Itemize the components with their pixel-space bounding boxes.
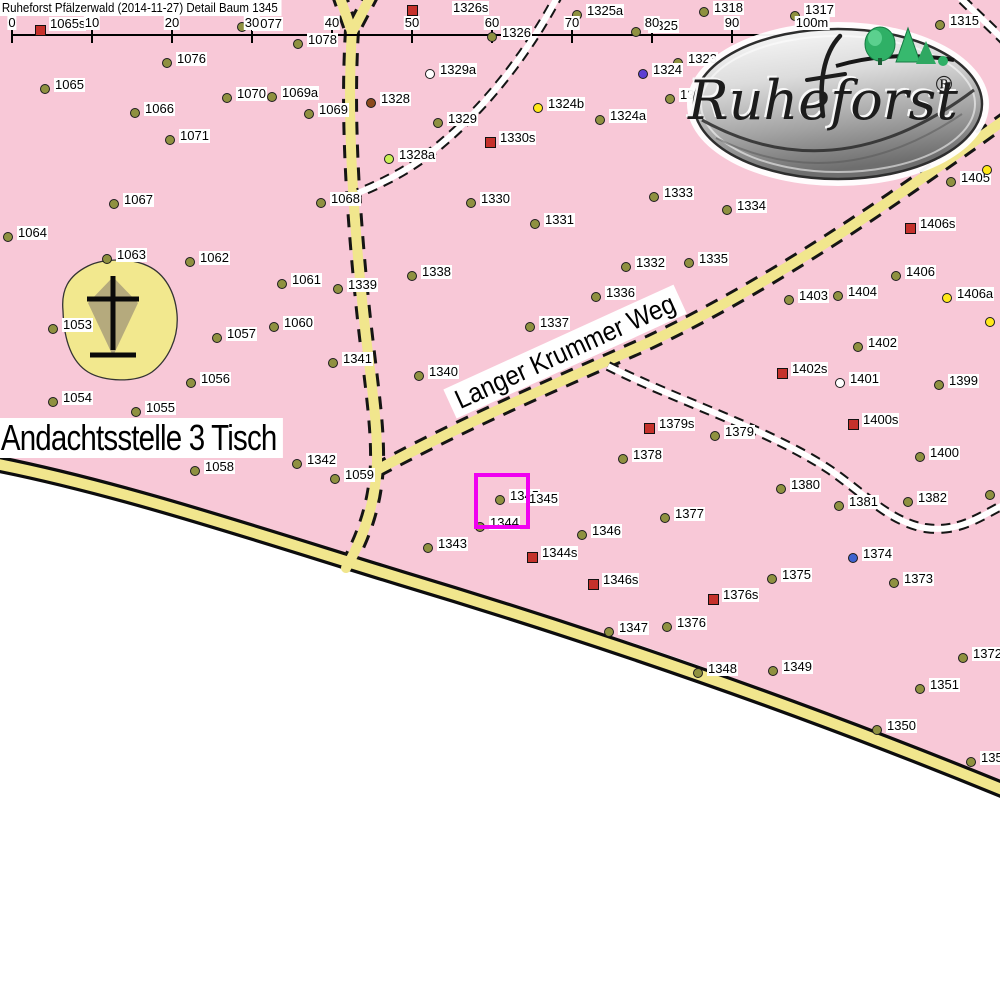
- tree-marker-1404: [833, 291, 843, 301]
- tree-label-1060: 1060: [283, 316, 314, 330]
- tree-marker-1066: [130, 108, 140, 118]
- tree-label-1324a: 1324a: [609, 109, 647, 123]
- tree-marker-1373: [889, 578, 899, 588]
- tree-label-1335: 1335: [698, 252, 729, 266]
- tree-marker-1336: [591, 292, 601, 302]
- tree-marker-1055: [131, 407, 141, 417]
- scalebar-label-100m: 100m: [795, 16, 830, 30]
- tree-label-1337: 1337: [539, 316, 570, 330]
- tree-marker-1331: [530, 219, 540, 229]
- tree-marker-1341: [328, 358, 338, 368]
- tree-marker-1402s: [777, 368, 788, 379]
- tree-label-1375: 1375: [781, 568, 812, 582]
- tree-label-1342: 1342: [306, 453, 337, 467]
- tree-marker-1340: [414, 371, 424, 381]
- tree-marker-1348: [693, 668, 703, 678]
- tree-marker-1054: [48, 397, 58, 407]
- tree-label-1380: 1380: [790, 478, 821, 492]
- tree-label-1059: 1059: [344, 468, 375, 482]
- tree-marker-1078: [293, 39, 303, 49]
- scalebar-label-60: 60: [484, 16, 500, 30]
- tree-marker-1339: [333, 284, 343, 294]
- tree-marker-1058: [190, 466, 200, 476]
- tree-marker-1377: [660, 513, 670, 523]
- tree-label-1328a: 1328a: [398, 148, 436, 162]
- tree-label-1332: 1332: [635, 256, 666, 270]
- tree-label-1399: 1399: [948, 374, 979, 388]
- scalebar-label-20: 20: [164, 16, 180, 30]
- tree-marker-1350: [872, 725, 882, 735]
- tree-label-1065: 1065: [54, 78, 85, 92]
- scalebar-label-0: 0: [7, 16, 16, 30]
- tree-marker-1346: [577, 530, 587, 540]
- tree-marker-1374: [848, 553, 858, 563]
- tree-label-1326s: 1326s: [452, 1, 489, 15]
- tree-label-1374: 1374: [862, 547, 893, 561]
- tree-label-1324b: 1324b: [547, 97, 585, 111]
- tree-marker-1067: [109, 199, 119, 209]
- tree-marker-1344s: [527, 552, 538, 563]
- tree-marker-1351: [915, 684, 925, 694]
- tree-label-1378: 1378: [632, 448, 663, 462]
- tree-marker-1064: [3, 232, 13, 242]
- selected-tree-highlight: [474, 473, 530, 529]
- tree-marker-1069: [304, 109, 314, 119]
- tree-label-1348: 1348: [707, 662, 738, 676]
- tree-label-1076: 1076: [176, 52, 207, 66]
- tree-marker-1334: [722, 205, 732, 215]
- tree-marker-1376s: [708, 594, 719, 605]
- tree-label-1330s: 1330s: [499, 131, 536, 145]
- tree-marker-1069a: [267, 92, 277, 102]
- tree-marker-1406s: [905, 223, 916, 234]
- tree-label-1349: 1349: [782, 660, 813, 674]
- tree-label-1064: 1064: [17, 226, 48, 240]
- tree-marker-1380: [776, 484, 786, 494]
- tree-label-1324: 1324: [652, 63, 683, 77]
- tree-label-1058: 1058: [204, 460, 235, 474]
- tree-label-1057: 1057: [226, 327, 257, 341]
- tree-label-1069a: 1069a: [281, 86, 319, 100]
- tree-label-1382: 1382: [917, 491, 948, 505]
- tree-marker-1375: [767, 574, 777, 584]
- tree-marker-1403: [784, 295, 794, 305]
- tree-marker-1329: [433, 118, 443, 128]
- tree-marker-1343: [423, 543, 433, 553]
- tree-label-1351: 1351: [929, 678, 960, 692]
- tree-marker-1372: [958, 653, 968, 663]
- tree-marker-1328: [366, 98, 376, 108]
- scalebar-label-10: 10: [84, 16, 100, 30]
- tree-label-1061: 1061: [291, 273, 322, 287]
- tree-marker-1065: [40, 84, 50, 94]
- tree-marker-1352: [966, 757, 976, 767]
- tree-marker-1332: [621, 262, 631, 272]
- tree-label-1325a: 1325a: [586, 4, 624, 18]
- tree-label-1346s: 1346s: [602, 573, 639, 587]
- tree-marker-1335: [684, 258, 694, 268]
- tree-label-1372: 1372: [972, 647, 1000, 661]
- tree-label-1402s: 1402s: [791, 362, 828, 376]
- tree-marker-1406: [891, 271, 901, 281]
- tree-marker-1402: [853, 342, 863, 352]
- tree-label-1328: 1328: [380, 92, 411, 106]
- tree-marker-1382: [903, 497, 913, 507]
- tree-label-1331: 1331: [544, 213, 575, 227]
- ruheforst-logo: Ruheforst Ruheforst ®: [686, 14, 990, 190]
- tree-marker-1347: [604, 627, 614, 637]
- tree-marker-1401: [835, 378, 845, 388]
- tree-label-1068: 1068: [330, 192, 361, 206]
- tree-label-1406: 1406: [905, 265, 936, 279]
- logo-registered-mark: ®: [933, 73, 955, 98]
- tree-marker-1062: [185, 257, 195, 267]
- tree-label-1053: 1053: [62, 318, 93, 332]
- tree-label-1381: 1381: [848, 495, 879, 509]
- tree-label-1329a: 1329a: [439, 63, 477, 77]
- tree-label-1067: 1067: [123, 193, 154, 207]
- tree-label-1070: 1070: [236, 87, 267, 101]
- tree-marker-1071: [165, 135, 175, 145]
- tree-marker-1376: [662, 622, 672, 632]
- tree-marker-1068: [316, 198, 326, 208]
- tree-marker-1330s: [485, 137, 496, 148]
- tree-marker-1379s: [644, 423, 655, 434]
- map-canvas: Andachtsstelle 3 Tisch Langer Krummer We…: [0, 0, 1000, 1000]
- tree-marker-1060: [269, 322, 279, 332]
- tree-marker-1059: [330, 474, 340, 484]
- tree-label-1346: 1346: [591, 524, 622, 538]
- map-title: Ruheforst Pfälzerwald (2014-11-27) Detai…: [0, 0, 281, 16]
- tree-label-1377: 1377: [674, 507, 705, 521]
- tree-label-1329: 1329: [447, 112, 478, 126]
- tree-marker-1330: [466, 198, 476, 208]
- tree-label-1352: 1352: [980, 751, 1000, 765]
- tree-marker-1342: [292, 459, 302, 469]
- tree-label-1347: 1347: [618, 621, 649, 635]
- tree-label-1341: 1341: [342, 352, 373, 366]
- tree-label-extra-1345: 1345: [528, 492, 559, 506]
- tree-label-1400s: 1400s: [862, 413, 899, 427]
- tree-label-1338: 1338: [421, 265, 452, 279]
- tree-label-1376s: 1376s: [722, 588, 759, 602]
- scalebar-label-40: 40: [324, 16, 340, 30]
- tree-label-1376: 1376: [676, 616, 707, 630]
- tree-label-1344s: 1344s: [541, 546, 578, 560]
- tree-label-1330: 1330: [480, 192, 511, 206]
- tree-label-1406a: 1406a: [956, 287, 994, 301]
- scalebar-label-90: 90: [724, 16, 740, 30]
- tree-label-1078: 1078: [307, 33, 338, 47]
- tree-marker-unlabeled: [985, 490, 995, 500]
- tree-marker-1349: [768, 666, 778, 676]
- tree-marker-1399: [934, 380, 944, 390]
- tree-marker-1053: [48, 324, 58, 334]
- tree-marker-1378: [618, 454, 628, 464]
- tree-label-1071: 1071: [179, 129, 210, 143]
- tree-label-1318: 1318: [713, 1, 744, 15]
- tree-marker-1329a: [425, 69, 435, 79]
- tree-marker-1337: [525, 322, 535, 332]
- tree-label-1326: 1326: [501, 26, 532, 40]
- tree-label-1334: 1334: [736, 199, 767, 213]
- tree-marker-1324a: [595, 115, 605, 125]
- tree-label-1401: 1401: [849, 372, 880, 386]
- tree-label-1056: 1056: [200, 372, 231, 386]
- tree-label-1350: 1350: [886, 719, 917, 733]
- tree-label-1054: 1054: [62, 391, 93, 405]
- scalebar-label-80: 80: [644, 16, 660, 30]
- tree-label-1066: 1066: [144, 102, 175, 116]
- tree-marker-1056: [186, 378, 196, 388]
- tree-marker-1063: [102, 254, 112, 264]
- tree-marker-1328a: [384, 154, 394, 164]
- tree-label-1065s: 1065s: [49, 17, 86, 31]
- tree-label-1403: 1403: [798, 289, 829, 303]
- tree-marker-1325: [631, 27, 641, 37]
- tree-label-1063: 1063: [116, 248, 147, 262]
- tree-marker-1070: [222, 93, 232, 103]
- tree-label-1402: 1402: [867, 336, 898, 350]
- tree-marker-1400s: [848, 419, 859, 430]
- tree-marker-1406a: [942, 293, 952, 303]
- tree-label-1379: 1379: [724, 425, 755, 439]
- tree-marker-1076: [162, 58, 172, 68]
- tree-marker-unlabeled: [985, 317, 995, 327]
- tree-marker-1346s: [588, 579, 599, 590]
- tree-label-1340: 1340: [428, 365, 459, 379]
- tree-label-1062: 1062: [199, 251, 230, 265]
- tree-label-1069: 1069: [318, 103, 349, 117]
- tree-marker-1065s: [35, 25, 46, 36]
- tree-label-1343: 1343: [437, 537, 468, 551]
- tree-label-1406s: 1406s: [919, 217, 956, 231]
- tree-marker-1326s: [407, 5, 418, 16]
- tree-label-1400: 1400: [929, 446, 960, 460]
- tree-marker-1057: [212, 333, 222, 343]
- tree-label-1404: 1404: [847, 285, 878, 299]
- tree-marker-1338: [407, 271, 417, 281]
- tree-marker-1324: [638, 69, 648, 79]
- tree-marker-1061: [277, 279, 287, 289]
- tree-marker-1381: [834, 501, 844, 511]
- tree-label-1336: 1336: [605, 286, 636, 300]
- tree-marker-1400: [915, 452, 925, 462]
- tree-label-1055: 1055: [145, 401, 176, 415]
- tree-label-1379s: 1379s: [658, 417, 695, 431]
- tree-marker-1321: [665, 94, 675, 104]
- tree-marker-1324b: [533, 103, 543, 113]
- tree-marker-1326: [487, 32, 497, 42]
- scalebar-label-70: 70: [564, 16, 580, 30]
- tree-marker-1333: [649, 192, 659, 202]
- tree-marker-1379: [710, 431, 720, 441]
- scalebar-label-50: 50: [404, 16, 420, 30]
- scalebar-label-30: 30: [244, 16, 260, 30]
- tree-label-1373: 1373: [903, 572, 934, 586]
- tree-label-1339: 1339: [347, 278, 378, 292]
